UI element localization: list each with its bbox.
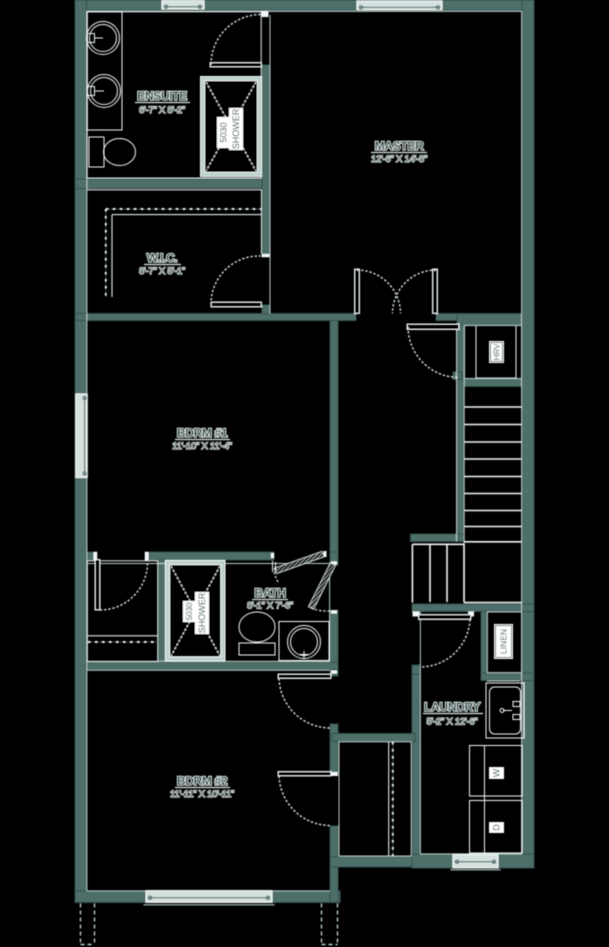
svg-text:D: D: [492, 824, 502, 831]
svg-text:ENSUITE: ENSUITE: [137, 89, 187, 103]
svg-text:11'-10" X 11'-4": 11'-10" X 11'-4": [172, 441, 232, 452]
svg-text:6'-7" X 8'-2": 6'-7" X 8'-2": [139, 105, 185, 116]
svg-text:BDRM #1: BDRM #1: [177, 426, 228, 440]
svg-text:W.I.C.: W.I.C.: [147, 251, 178, 265]
svg-text:SHOWER: SHOWER: [231, 108, 241, 149]
svg-text:5030: 5030: [219, 122, 229, 142]
svg-text:BATH: BATH: [254, 586, 285, 600]
svg-text:SHOWER: SHOWER: [197, 592, 207, 633]
svg-text:8'-1" X 7'-6": 8'-1" X 7'-6": [247, 601, 293, 612]
svg-text:5030: 5030: [185, 602, 194, 620]
svg-text:8'-7" X 5'-1": 8'-7" X 5'-1": [139, 266, 185, 277]
svg-text:W: W: [492, 768, 502, 777]
svg-text:12'-6" X 14'-8": 12'-6" X 14'-8": [371, 154, 427, 165]
svg-text:HRV: HRV: [492, 343, 501, 360]
svg-text:LINEN: LINEN: [498, 629, 508, 654]
svg-text:5'-2" X 12'-6": 5'-2" X 12'-6": [426, 717, 477, 728]
svg-text:11'-11" X 10'-11": 11'-11" X 10'-11": [170, 789, 234, 800]
svg-text:MASTER: MASTER: [375, 139, 424, 153]
svg-text:BDRM #2: BDRM #2: [177, 774, 228, 788]
svg-text:LAUNDRY: LAUNDRY: [424, 700, 480, 714]
